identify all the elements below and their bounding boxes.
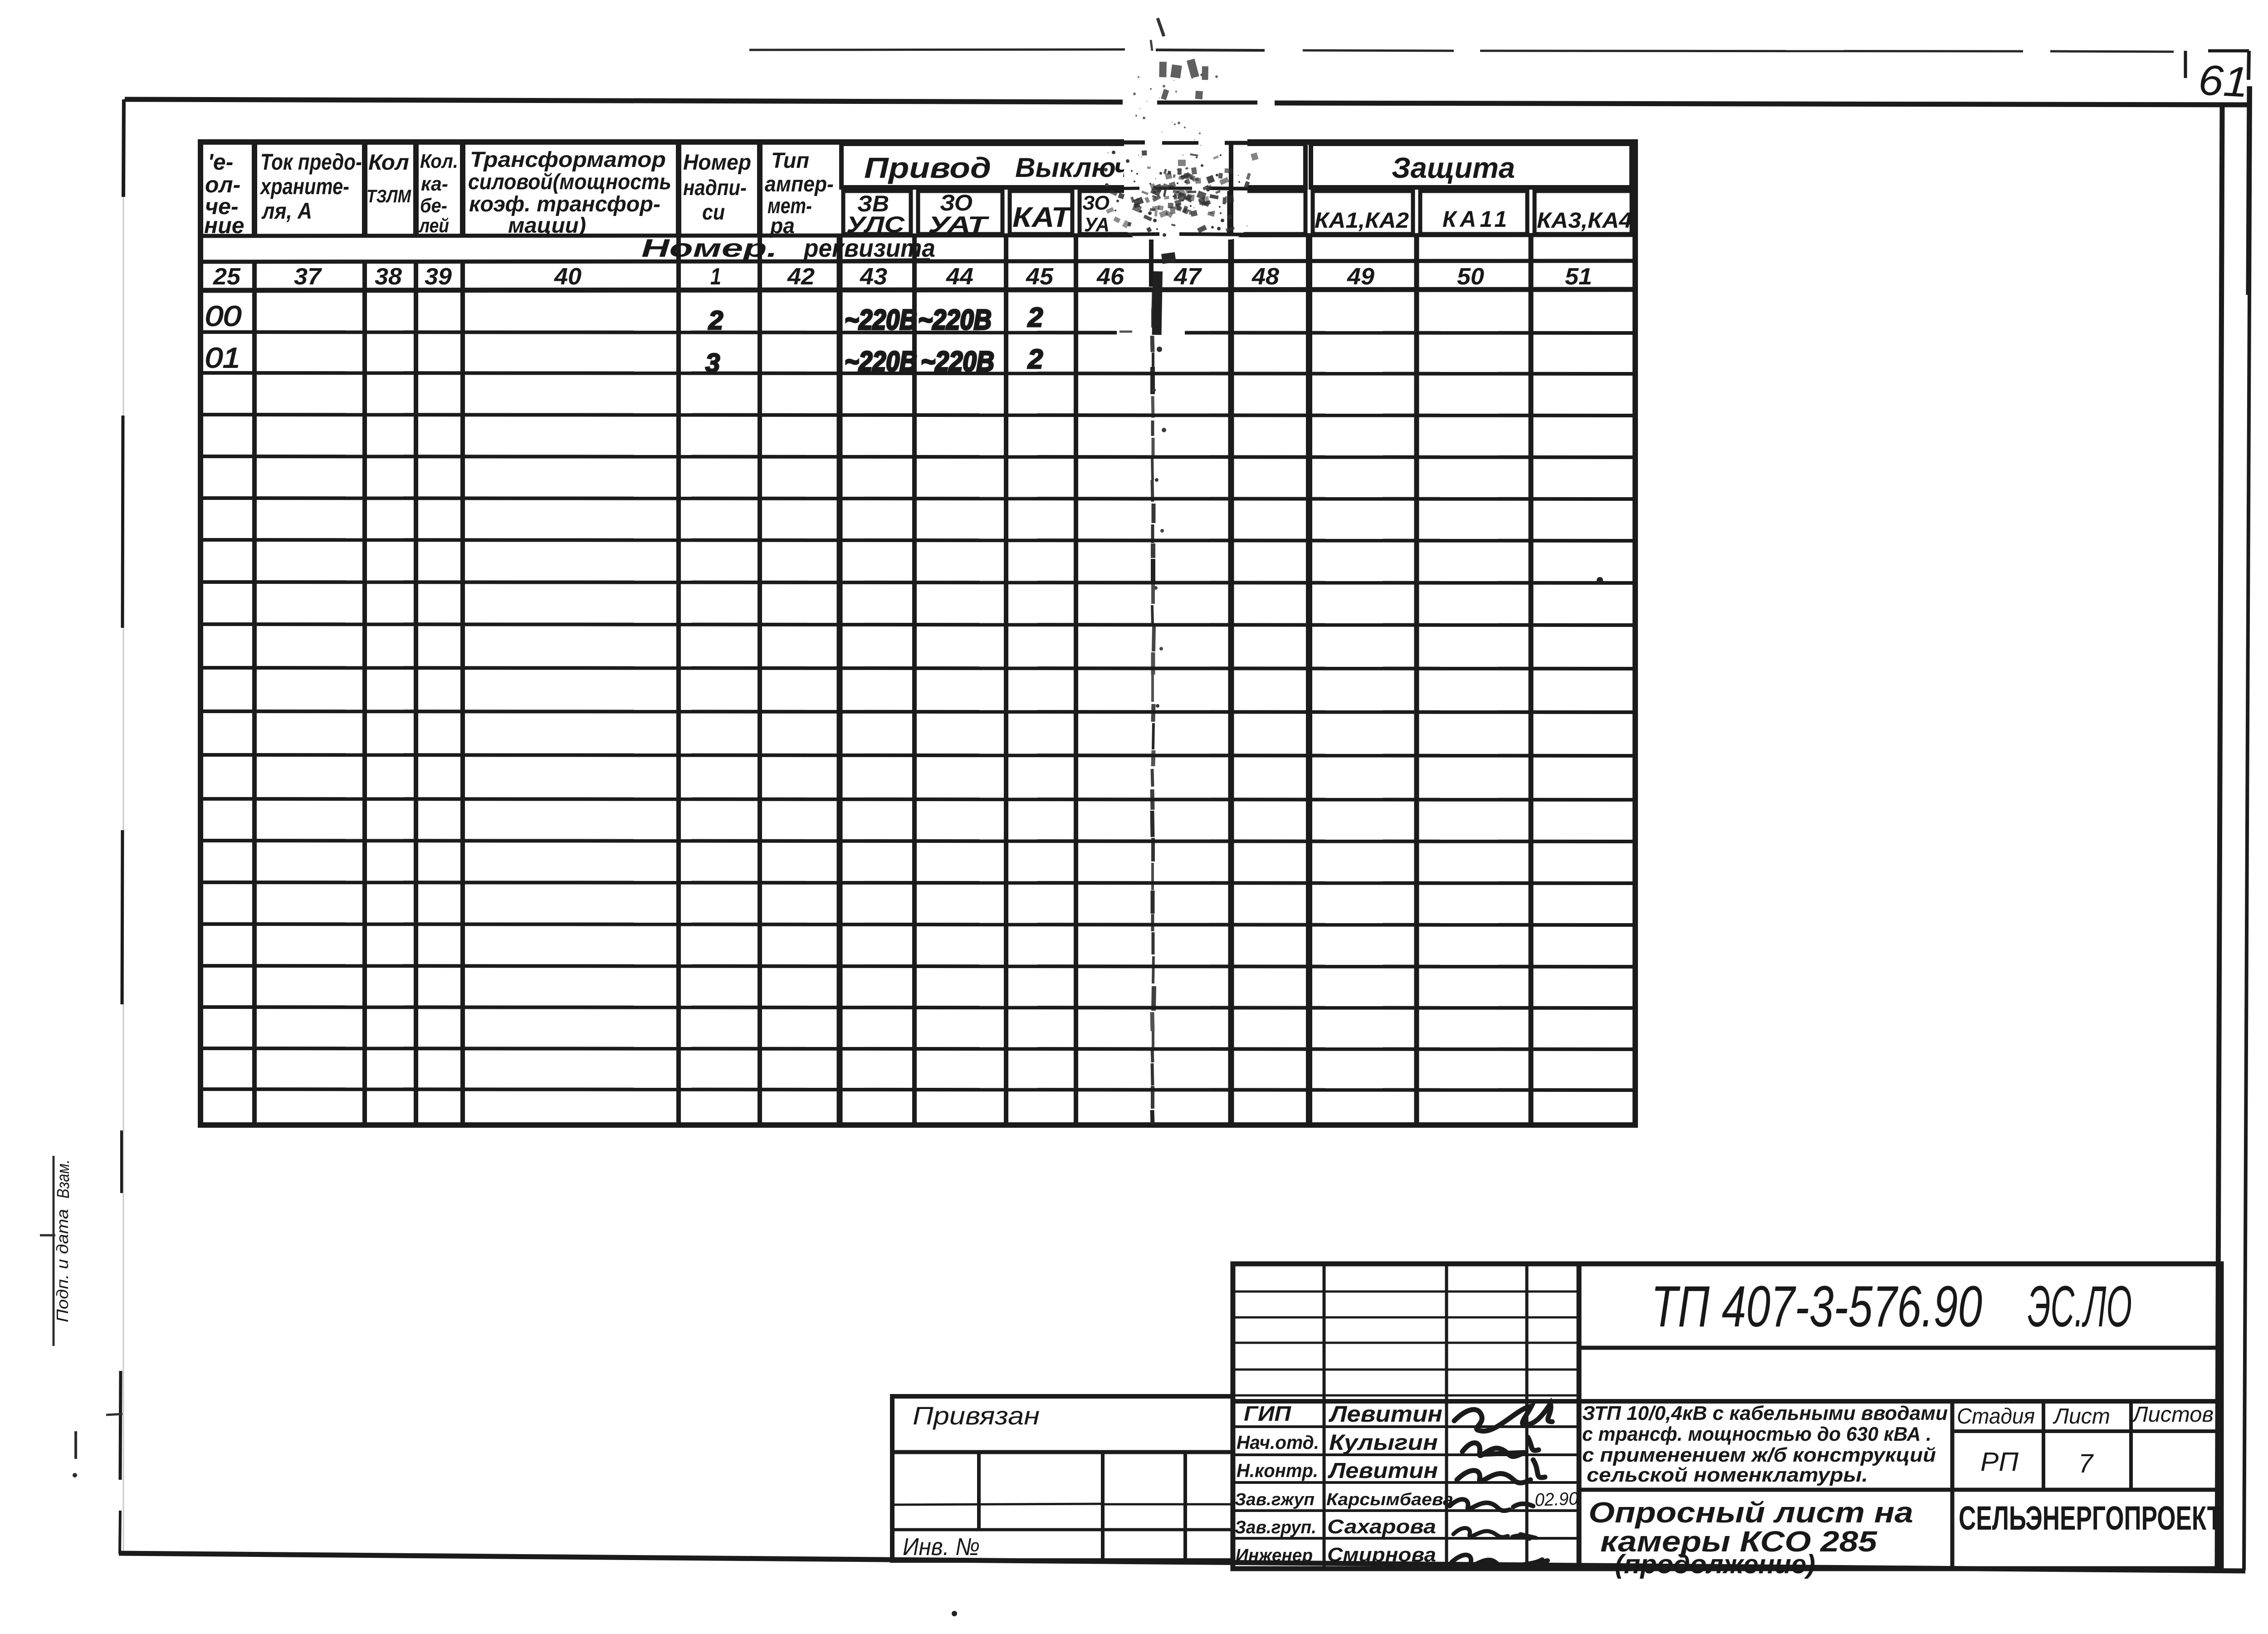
svg-text:38: 38 bbox=[375, 264, 402, 290]
svg-text:Трансформатор: Трансформатор bbox=[470, 148, 666, 172]
svg-text:02.90: 02.90 bbox=[1535, 1489, 1579, 1510]
svg-text:48: 48 bbox=[1251, 264, 1279, 290]
svg-text:Стадия: Стадия bbox=[1957, 1404, 2035, 1429]
svg-text:2: 2 bbox=[708, 306, 723, 335]
svg-text:Инженер: Инженер bbox=[1236, 1546, 1313, 1566]
svg-text:КА1,КА2: КА1,КА2 bbox=[1315, 209, 1409, 233]
svg-text:Подп. и дата: Подп. и дата bbox=[53, 1209, 72, 1322]
svg-text:49: 49 bbox=[1347, 264, 1374, 290]
svg-text:Опросный лист на: Опросный лист на bbox=[1589, 1496, 1913, 1529]
svg-text:УАТ: УАТ bbox=[928, 212, 990, 237]
svg-text:Тип: Тип bbox=[771, 149, 809, 173]
svg-text:КАТ: КАТ bbox=[1012, 202, 1073, 233]
svg-text:40: 40 bbox=[554, 264, 582, 290]
svg-text:Привязан: Привязан bbox=[913, 1401, 1040, 1430]
svg-text:Инв. №: Инв. № bbox=[903, 1533, 980, 1561]
svg-text:'е-: 'е- bbox=[208, 149, 233, 175]
svg-text:силовой(мощность: силовой(мощность bbox=[468, 170, 671, 194]
svg-text:61: 61 bbox=[2197, 56, 2249, 106]
svg-text:УА: УА bbox=[1084, 214, 1110, 236]
svg-text:сельской номенклатуры.: сельской номенклатуры. bbox=[1587, 1464, 1868, 1486]
svg-text:с применением ж/б конструкций: с применением ж/б конструкций bbox=[1582, 1444, 1936, 1466]
svg-text:25: 25 bbox=[213, 264, 241, 290]
svg-text:3: 3 bbox=[705, 348, 720, 378]
svg-text:50: 50 bbox=[1457, 264, 1484, 290]
svg-text:Н.контр.: Н.контр. bbox=[1237, 1460, 1318, 1481]
svg-text:Левитин: Левитин bbox=[1329, 1401, 1442, 1427]
svg-text:ГИП: ГИП bbox=[1244, 1402, 1291, 1425]
svg-text:бе-: бе- bbox=[420, 195, 447, 217]
svg-text:45: 45 bbox=[1026, 264, 1054, 290]
svg-text:с трансф. мощностью до 630 кВА: с трансф. мощностью до 630 кВА . bbox=[1582, 1423, 1931, 1445]
svg-text:ТЗЛМ: ТЗЛМ bbox=[367, 186, 411, 206]
svg-text:РП: РП bbox=[1980, 1447, 2019, 1477]
svg-text:лей: лей bbox=[418, 215, 449, 237]
svg-text:Ток предо-: Ток предо- bbox=[260, 149, 362, 175]
svg-text:7: 7 bbox=[2078, 1449, 2094, 1478]
svg-text:~220В: ~220В bbox=[921, 346, 994, 377]
svg-text:ние: ние bbox=[204, 213, 244, 238]
svg-text:Зав.гжуп: Зав.гжуп bbox=[1235, 1490, 1315, 1509]
svg-text:Смирнова: Смирнова bbox=[1327, 1544, 1436, 1566]
svg-text:Защита: Защита bbox=[1392, 152, 1515, 184]
svg-text:Листов: Листов bbox=[2131, 1403, 2214, 1427]
svg-text:Взам.: Взам. bbox=[54, 1159, 73, 1199]
svg-text:ЗТП 10/0,4кВ с кабельными ввод: ЗТП 10/0,4кВ с кабельными вводами bbox=[1582, 1402, 1948, 1424]
svg-text:Левитин: Левитин bbox=[1328, 1459, 1438, 1483]
svg-text:Привод: Привод bbox=[864, 152, 991, 184]
svg-text:Номер: Номер bbox=[683, 151, 751, 175]
svg-text:надпи-: надпи- bbox=[683, 176, 747, 200]
svg-text:(продолжение): (продолжение) bbox=[1615, 1550, 1815, 1579]
svg-text:Кол: Кол bbox=[368, 151, 409, 175]
svg-text:~220В: ~220В bbox=[845, 346, 917, 377]
svg-text:ТП 407-3-576.90: ТП 407-3-576.90 bbox=[1651, 1274, 1982, 1339]
svg-text:44: 44 bbox=[946, 264, 973, 290]
svg-text:Нач.отд.: Нач.отд. bbox=[1237, 1432, 1319, 1453]
svg-text:37: 37 bbox=[294, 264, 322, 290]
svg-text:КА3,КА4: КА3,КА4 bbox=[1537, 209, 1632, 233]
svg-text:мации): мации) bbox=[508, 214, 586, 238]
svg-text:КА11: КА11 bbox=[1442, 206, 1510, 232]
svg-text:ЭС.ЛО: ЭС.ЛО bbox=[2028, 1274, 2132, 1339]
svg-text:ампер-: ампер- bbox=[765, 172, 834, 196]
svg-text:ка-: ка- bbox=[421, 173, 448, 195]
svg-text:Кол.: Кол. bbox=[420, 150, 458, 172]
svg-text:42: 42 bbox=[787, 264, 815, 290]
svg-text:Сахарова: Сахарова bbox=[1327, 1516, 1436, 1538]
svg-text:СЕЛЬЭНЕРГОПРОЕКТ: СЕЛЬЭНЕРГОПРОЕКТ bbox=[1959, 1499, 2222, 1537]
svg-text:Карсымбаева: Карсымбаева bbox=[1326, 1490, 1453, 1509]
svg-text:Номер.: Номер. bbox=[641, 234, 777, 262]
svg-text:Кулыгин: Кулыгин bbox=[1329, 1431, 1438, 1455]
svg-text:Лист: Лист bbox=[2053, 1404, 2110, 1429]
svg-text:51: 51 bbox=[1565, 264, 1592, 290]
svg-text:~220В: ~220В bbox=[918, 304, 992, 336]
svg-text:ЗО: ЗО bbox=[1082, 192, 1110, 214]
svg-text:1: 1 bbox=[710, 264, 721, 290]
svg-text:Зав.груп.: Зав.груп. bbox=[1235, 1517, 1316, 1537]
svg-text:си: си bbox=[702, 201, 725, 225]
svg-text:2: 2 bbox=[1027, 302, 1043, 333]
svg-text:коэф. трансфор-: коэф. трансфор- bbox=[469, 192, 660, 216]
svg-text:47: 47 bbox=[1173, 264, 1202, 290]
svg-text:39: 39 bbox=[425, 264, 452, 290]
svg-text:01: 01 bbox=[205, 342, 240, 374]
svg-text:46: 46 bbox=[1096, 264, 1124, 290]
svg-text:43: 43 bbox=[860, 264, 887, 290]
svg-text:00: 00 bbox=[205, 301, 241, 332]
svg-text:~220В: ~220В bbox=[845, 304, 917, 336]
svg-text:храните-: храните- bbox=[259, 174, 349, 199]
svg-text:2: 2 bbox=[1027, 344, 1043, 374]
svg-text:реквизита: реквизита bbox=[803, 234, 935, 262]
svg-text:ля, А: ля, А bbox=[261, 198, 312, 224]
